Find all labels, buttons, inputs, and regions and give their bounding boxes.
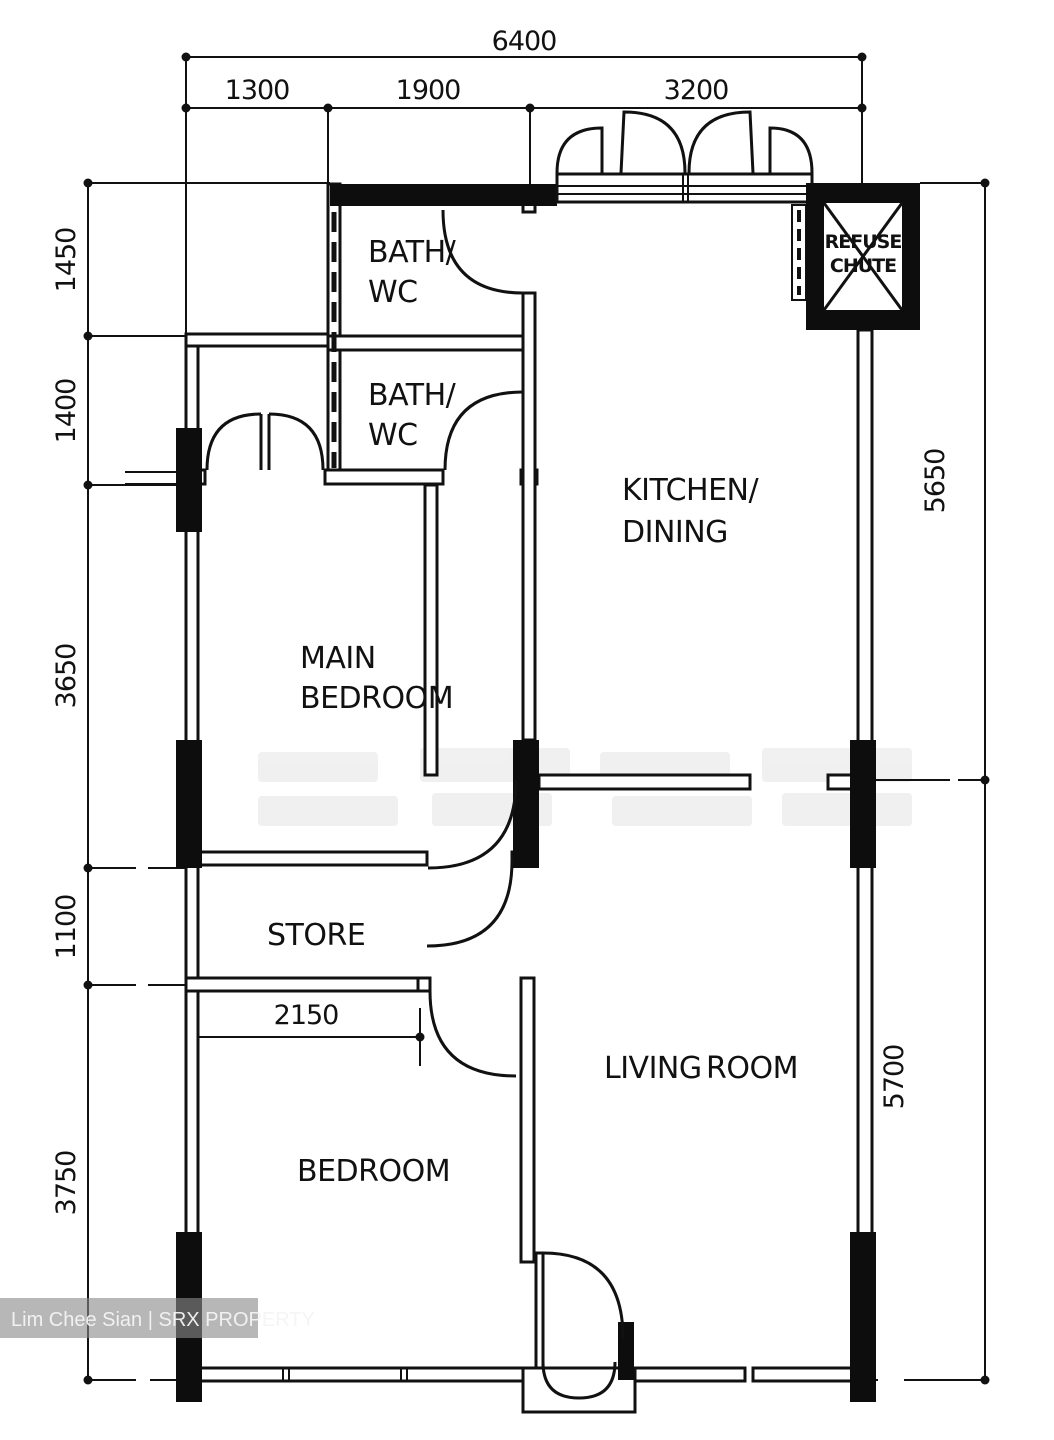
bath-top-label-line2: WC bbox=[368, 275, 418, 310]
store-label: STORE bbox=[267, 918, 365, 953]
floorplan-page: REFUSE CHUTE 6400 1300 1900 3200 bbox=[0, 0, 1054, 1440]
kitchen-label-line1: KITCHEN/ bbox=[622, 473, 759, 508]
kitchen-label-line2: DINING bbox=[622, 515, 728, 550]
dim-top-mid: 1900 bbox=[396, 75, 461, 106]
bath-mid-label-line2: WC bbox=[368, 418, 418, 453]
bath-mid-door-arc bbox=[445, 392, 523, 470]
agent-watermark: Lim Chee Sian | SRX PROPERTY bbox=[0, 1298, 315, 1338]
vestibule-door-arc-left bbox=[207, 414, 261, 470]
dim-left-1: 1450 bbox=[51, 228, 82, 293]
window-arc-2 bbox=[621, 112, 685, 173]
vestibule-door-arc-right bbox=[269, 414, 323, 470]
dim-total-width: 6400 bbox=[492, 26, 557, 57]
main-bedroom-label-line1: MAIN bbox=[300, 641, 376, 676]
bath-top-label-line1: BATH/ bbox=[368, 235, 457, 270]
main-bedroom-label-line2: BEDROOM bbox=[300, 681, 453, 716]
refuse-chute-label-line1: REFUSE bbox=[825, 231, 902, 253]
dim-left-5: 3750 bbox=[51, 1151, 82, 1216]
dim-left-3: 3650 bbox=[51, 644, 82, 709]
living-room-label-line1: LIVING bbox=[604, 1051, 702, 1086]
bedroom-door-arc bbox=[430, 991, 516, 1076]
store-door-arc bbox=[427, 861, 512, 946]
dim-left-4: 1100 bbox=[51, 895, 82, 960]
window-arc-4 bbox=[770, 128, 812, 173]
dim-left-2: 1400 bbox=[51, 379, 82, 444]
dim-top-right: 3200 bbox=[664, 75, 729, 106]
entrance-door-arc bbox=[543, 1253, 623, 1338]
refuse-chute: REFUSE CHUTE bbox=[806, 183, 920, 330]
dim-top-left: 1300 bbox=[225, 75, 290, 106]
window-arc-3 bbox=[689, 112, 753, 173]
bedroom-label: BEDROOM bbox=[297, 1154, 450, 1189]
top-wall-solid bbox=[330, 184, 557, 206]
living-room-label-line2: ROOM bbox=[706, 1051, 798, 1086]
agent-watermark-text: Lim Chee Sian | SRX PROPERTY bbox=[11, 1309, 315, 1331]
dim-right-top: 5650 bbox=[920, 449, 951, 514]
dim-store-width: 2150 bbox=[274, 1000, 339, 1031]
bath-mid-label-line1: BATH/ bbox=[368, 378, 457, 413]
window-arc-1 bbox=[557, 128, 602, 173]
refuse-chute-label-line2: CHUTE bbox=[830, 255, 896, 277]
dim-right-bottom: 5700 bbox=[879, 1045, 910, 1110]
floorplan-drawing: REFUSE CHUTE 6400 1300 1900 3200 bbox=[0, 0, 1054, 1440]
